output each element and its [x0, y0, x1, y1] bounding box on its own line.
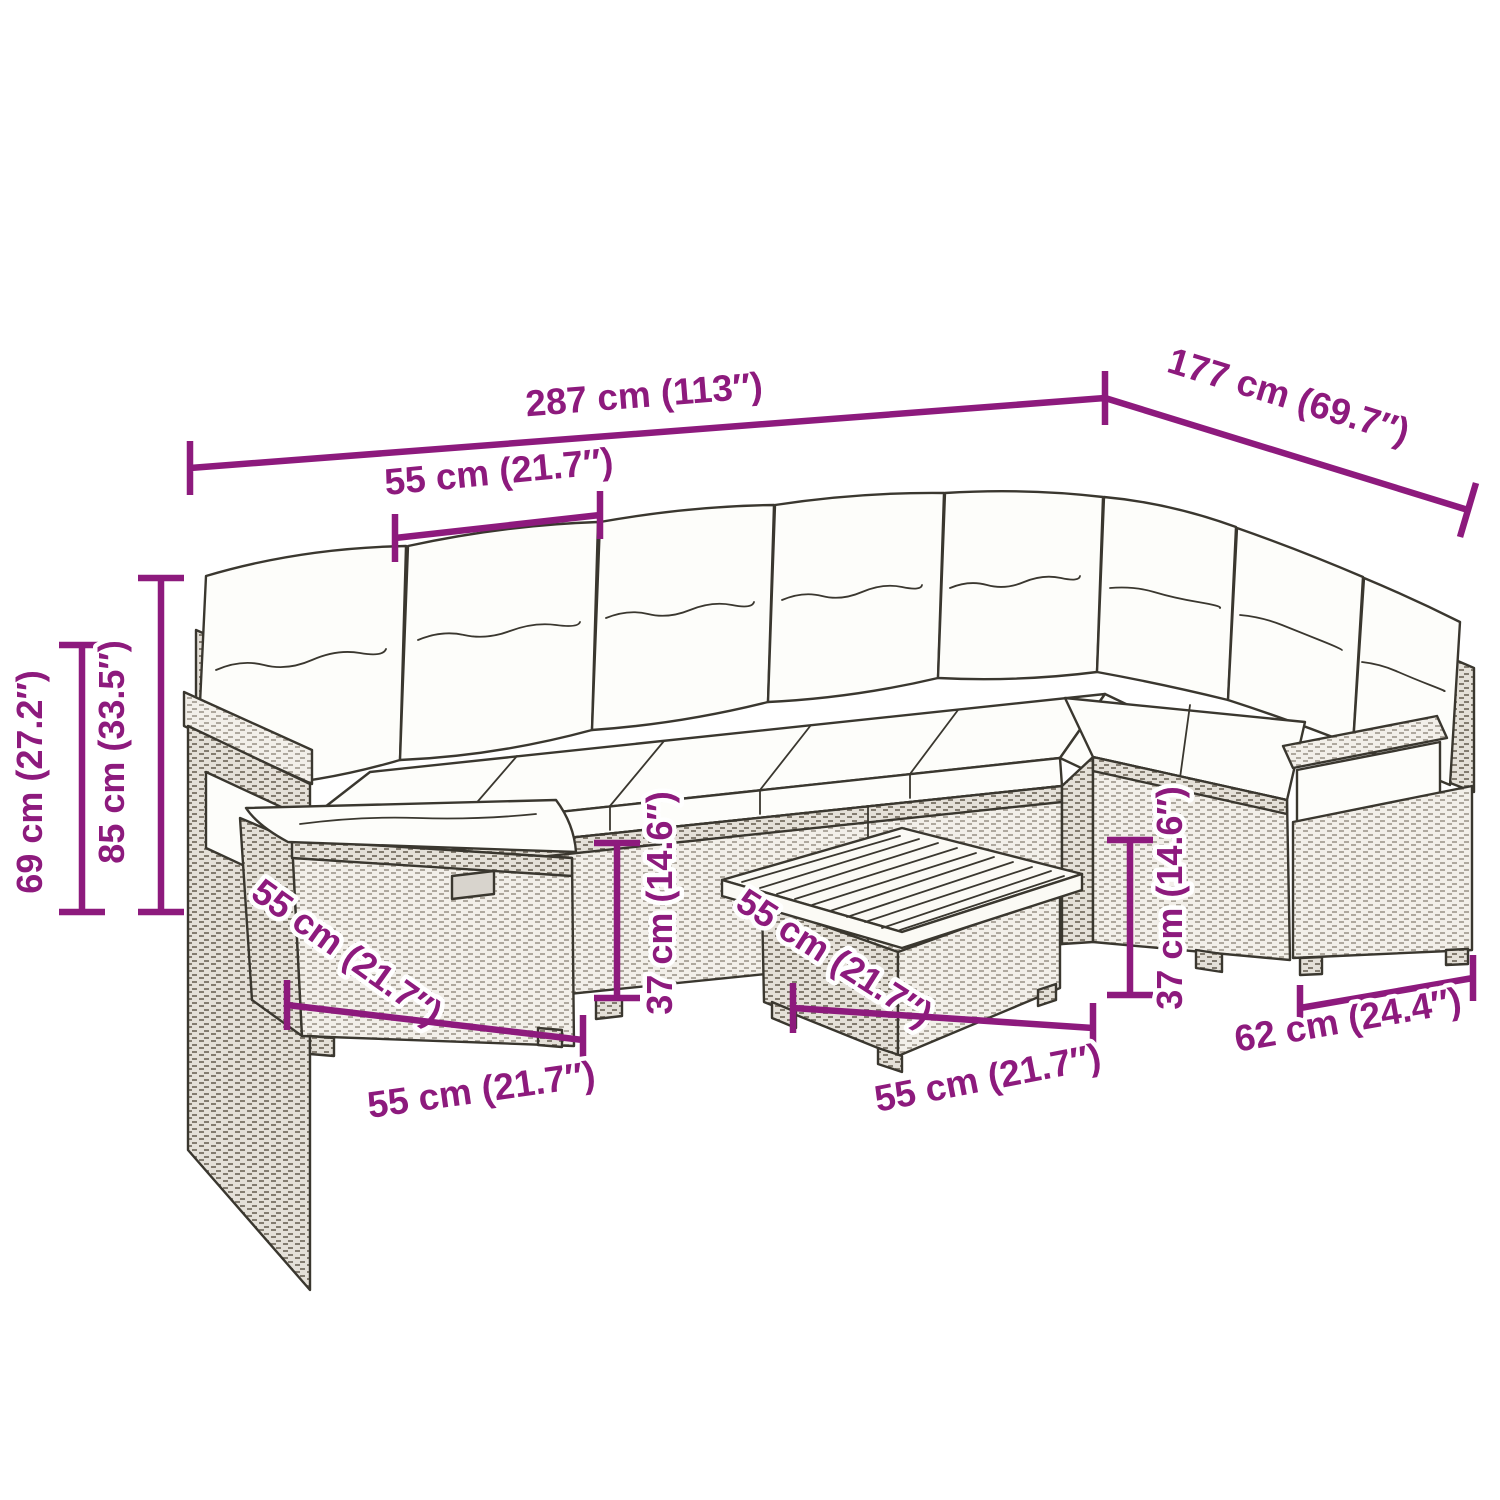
- dim-total-width-label: 287 cm (113″): [524, 365, 764, 425]
- dim-seat-height-left-label: 37 cm (14.6″): [639, 791, 680, 1014]
- dim-total-width: 287 cm (113″): [190, 365, 1105, 495]
- dimension-diagram-page: 287 cm (113″) 177 cm (69.7″) 55 cm (21.7…: [0, 0, 1500, 1500]
- dim-armrest-height-label: 69 cm (27.2″): [9, 670, 50, 893]
- dim-seat-height-right-label: 37 cm (14.6″): [1149, 786, 1190, 1009]
- product-dimension-diagram: 287 cm (113″) 177 cm (69.7″) 55 cm (21.7…: [0, 0, 1500, 1500]
- dim-ottoman-width-label: 55 cm (21.7″): [365, 1053, 598, 1126]
- dim-end-module-width-label: 62 cm (24.4″): [1231, 980, 1464, 1060]
- dim-total-depth-label: 177 cm (69.7″): [1163, 340, 1414, 452]
- dim-end-module-width: 62 cm (24.4″): [1231, 955, 1473, 1060]
- coffee-table: [722, 828, 1082, 1072]
- dim-total-height-label: 85 cm (33.5″): [91, 640, 132, 863]
- sofa-set-drawing: [184, 491, 1474, 1290]
- dim-total-height: 85 cm (33.5″): [91, 578, 184, 912]
